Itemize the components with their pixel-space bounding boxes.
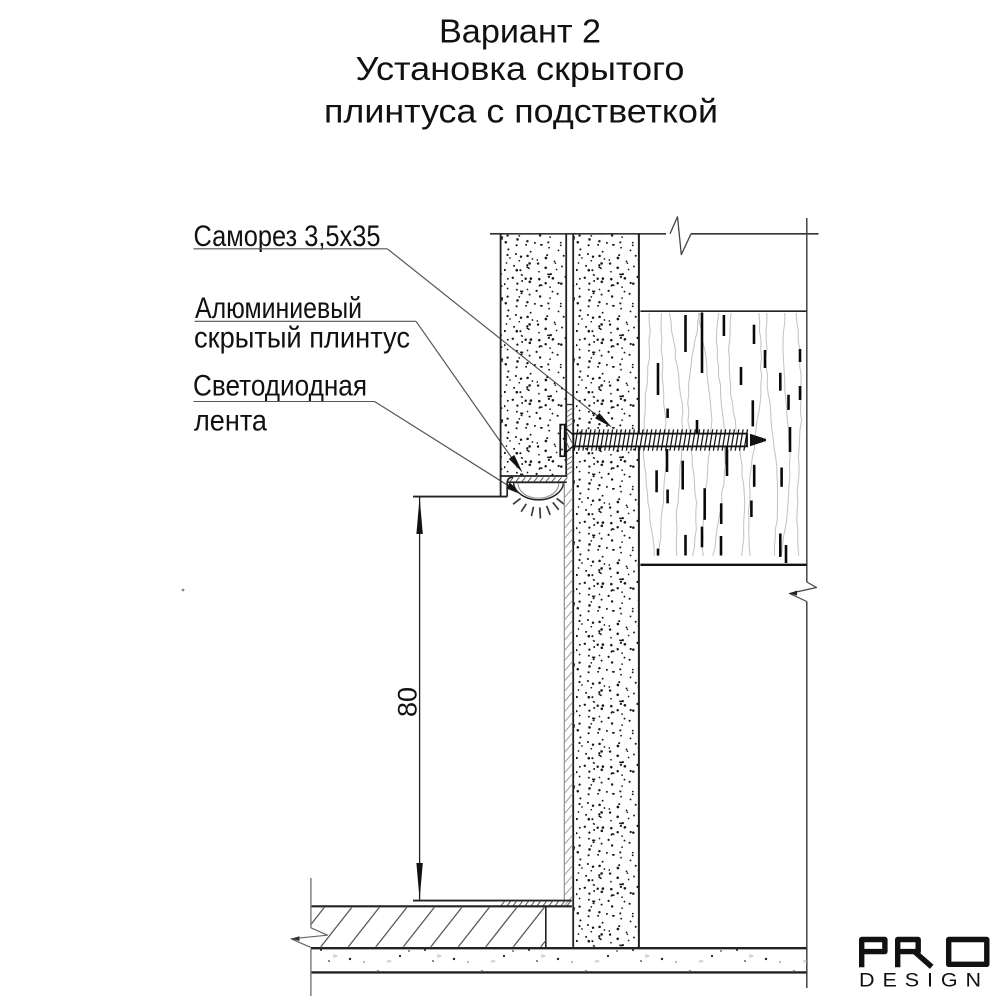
svg-text:лента: лента: [194, 405, 267, 438]
svg-text:Алюминиевый: Алюминиевый: [195, 292, 362, 325]
svg-text:Саморез 3,5x35: Саморез 3,5x35: [194, 220, 381, 253]
svg-text:Вариант 2: Вариант 2: [439, 13, 601, 50]
svg-text:Светодиодная: Светодиодная: [193, 370, 367, 403]
svg-text:скрытый плинтус: скрытый плинтус: [194, 322, 410, 355]
svg-text:Установка скрытого: Установка скрытого: [356, 50, 685, 87]
svg-text:80: 80: [393, 687, 423, 717]
svg-text:DESIGN: DESIGN: [859, 971, 989, 992]
svg-text:плинтуса с подстветкой: плинтуса с подстветкой: [324, 93, 718, 130]
